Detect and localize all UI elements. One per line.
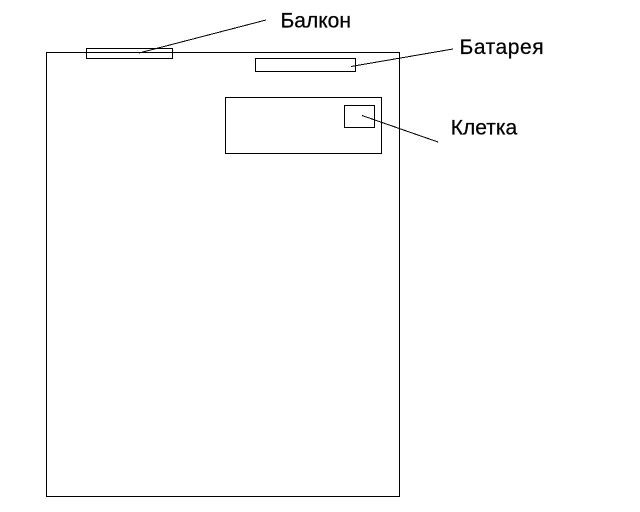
svg-text:Клетка: Клетка (451, 117, 518, 140)
svg-text:Батарея: Батарея (460, 36, 545, 59)
svg-text:Балкон: Балкон (281, 9, 351, 32)
